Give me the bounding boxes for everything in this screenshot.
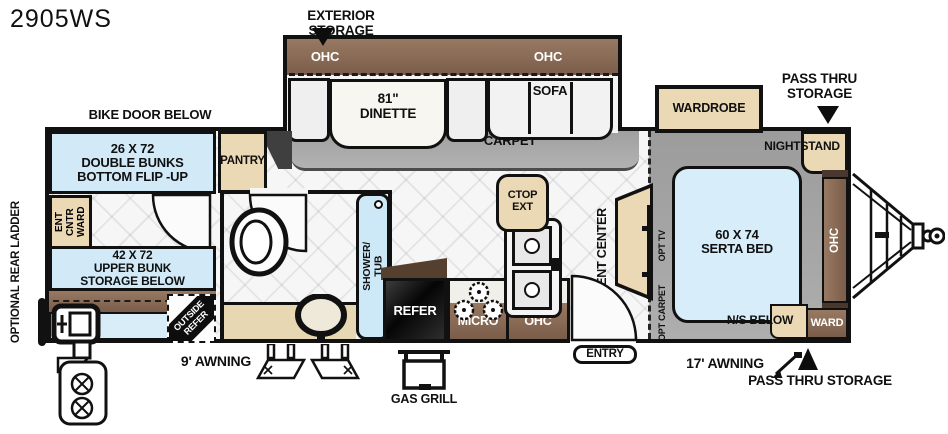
page-title: 2905WS: [10, 6, 130, 33]
opt-carpet-label: OPT CARPET: [658, 285, 668, 341]
floorplan-canvas: 2905WS CARPET OHC OHC 81" DINETTE SOFA E…: [0, 0, 948, 434]
sink-basin-upper: [512, 226, 552, 266]
opt-tv-label-wrap: OPT TV: [653, 214, 673, 278]
tv-mount-icon: [647, 205, 652, 299]
gas-grill-icon: [392, 344, 456, 392]
bike-door-label: BIKE DOOR BELOW: [80, 108, 220, 122]
entry-door-arc: [568, 274, 638, 342]
dinette-label: 81" DINETTE: [331, 92, 445, 121]
rear-ladder-icon: [38, 298, 46, 346]
front-wardrobe-label: WARD: [811, 318, 844, 330]
sofa-label: SOFA: [515, 84, 585, 98]
hitch-a-frame-icon: [851, 166, 945, 306]
rear-awning-label: 9' AWNING: [168, 354, 264, 369]
opt-carpet-label-wrap: OPT CARPET: [653, 282, 673, 344]
entry-step: ENTRY: [573, 345, 637, 364]
ent-cntr-ward-label: ENT CNTR WARD: [54, 198, 87, 246]
outside-refer-label: OUTSIDE REFER: [172, 299, 213, 340]
entry-label: ENTRY: [586, 348, 624, 360]
shower-head-icon: [374, 200, 383, 209]
ent-cntr-ward-cabinet: ENT CNTR WARD: [49, 195, 92, 249]
gas-grill-label: GAS GRILL: [386, 393, 462, 407]
stabilizer-jack-right-icon: [308, 344, 360, 390]
front-awning-label: 17' AWNING: [680, 356, 770, 371]
ohc-dinette-label: OHC: [295, 50, 355, 64]
sink-faucet-icon: [551, 258, 561, 271]
front-ohc-cap-top: [822, 170, 848, 177]
front-wardrobe: WARD: [806, 308, 848, 339]
dinette-seat-right: [446, 78, 488, 142]
bath-sink-icon: [290, 294, 354, 344]
opt-tv-label: OPT TV: [658, 230, 668, 261]
sink-drain-lower: [524, 282, 540, 298]
pass-thru-top-label: PASS THRU STORAGE: [762, 72, 877, 101]
exterior-storage-arrow-icon: [312, 28, 334, 46]
double-bunks-label: 26 X 72 DOUBLE BUNKS BOTTOM FLIP -UP: [51, 142, 214, 184]
toilet-icon: [226, 202, 292, 280]
ns-below-label: N/S BELOW: [712, 314, 808, 327]
refer-label: REFER: [385, 304, 445, 318]
ohc-sofa-label: OHC: [518, 50, 578, 64]
cooktop-burners-icon: [450, 280, 508, 322]
pass-thru-bottom-label: PASS THRU STORAGE: [745, 374, 895, 389]
shower-tub-label: SHOWER/ TUB: [362, 242, 385, 291]
tv-mount-tick-bottom: [642, 272, 648, 277]
front-ohc-label: OHC: [829, 228, 841, 253]
ctop-ext-label: CTOP EXT: [498, 190, 547, 214]
exterior-storage-label: EXTERIOR STORAGE: [279, 9, 403, 38]
outside-refer-box: OUTSIDE REFER: [167, 294, 216, 343]
front-ohc-cabinet: OHC: [822, 177, 848, 303]
slide-dashed-line: [289, 73, 618, 76]
outside-griddle-icon: [52, 340, 114, 428]
rear-ladder-label-wrap: OPTIONAL REAR LADDER: [4, 200, 28, 345]
upper-bunk-label: 42 X 72 UPPER BUNK STORAGE BELOW: [51, 249, 214, 288]
pantry-label: PANTRY: [216, 155, 269, 167]
dinette-seat-left: [288, 78, 330, 142]
tv-mount-tick-top: [642, 226, 648, 231]
sink-basin-lower: [512, 270, 552, 310]
bed-label: 60 X 74 SERTA BED: [674, 228, 800, 256]
sink-drain-upper: [524, 238, 540, 254]
pass-thru-top-arrow-icon: [817, 106, 839, 124]
nightstand-label: NIGHTSTAND: [752, 140, 852, 153]
stabilizer-jack-left-icon: [256, 344, 308, 390]
wardrobe-label: WARDROBE: [657, 102, 761, 116]
pass-thru-bottom-arrow-icon: [798, 348, 818, 370]
rear-ladder-label: OPTIONAL REAR LADDER: [10, 201, 22, 343]
